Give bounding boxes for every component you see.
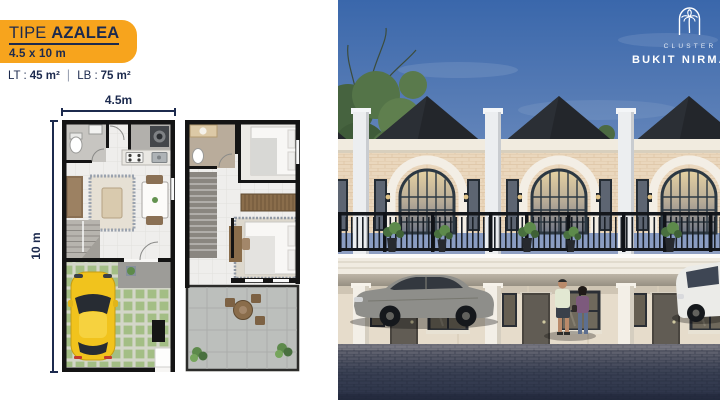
height-dimension-label: 10 m — [29, 224, 43, 268]
carport — [66, 262, 171, 367]
kitchen — [122, 150, 171, 165]
dimension-tick — [174, 108, 176, 116]
staircase-2 — [189, 172, 217, 258]
cluster-logo: CLUSTER BUKIT NIRMALA — [632, 7, 720, 66]
lt-value: 45 m² — [30, 70, 60, 82]
width-dimension-line — [62, 110, 175, 112]
wardrobe — [241, 194, 296, 211]
cluster-name: BUKIT NIRMALA — [632, 55, 720, 66]
area-separator: | — [67, 67, 70, 82]
height-dimension-line — [52, 121, 54, 372]
dimension-tick — [61, 108, 63, 116]
exterior-render-panel: CLUSTER BUKIT NIRMALA — [338, 0, 720, 400]
dimension-tick — [50, 371, 58, 373]
arch-palm-icon — [676, 7, 703, 36]
bedroom-2 — [229, 218, 296, 278]
staircase-1 — [66, 220, 100, 258]
floor-plan-level-1 — [62, 120, 175, 372]
brochure-page: TIPE AZALEA 4.5 x 10 m LT : 45 m² | LB :… — [0, 0, 720, 420]
width-dimension-label: 4.5m — [62, 93, 175, 107]
badge-prefix: TIPE — [9, 24, 46, 42]
badge-title: TIPE AZALEA — [9, 24, 119, 45]
floorplan-panel: TIPE AZALEA 4.5 x 10 m LT : 45 m² | LB :… — [0, 0, 338, 420]
area-info: LT : 45 m² | LB : 75 m² — [8, 67, 131, 82]
car-top-view — [68, 272, 118, 360]
roof-terrace — [187, 286, 298, 370]
floor-plan-level-2 — [185, 120, 300, 372]
bathroom-1 — [66, 124, 109, 163]
lt-label: LT : — [8, 70, 27, 82]
dimension-tick — [50, 120, 58, 122]
badge-name: AZALEA — [51, 24, 119, 42]
cluster-label: CLUSTER — [632, 44, 720, 51]
badge-size: 4.5 x 10 m — [9, 48, 137, 60]
bathroom-2 — [189, 124, 238, 169]
bedroom-1 — [238, 124, 296, 183]
pavement — [338, 344, 720, 400]
lb-label: LB : — [77, 70, 97, 82]
lb-value: 75 m² — [101, 70, 131, 82]
tipe-badge: TIPE AZALEA 4.5 x 10 m — [0, 20, 137, 63]
balcony-fascia — [338, 254, 720, 286]
